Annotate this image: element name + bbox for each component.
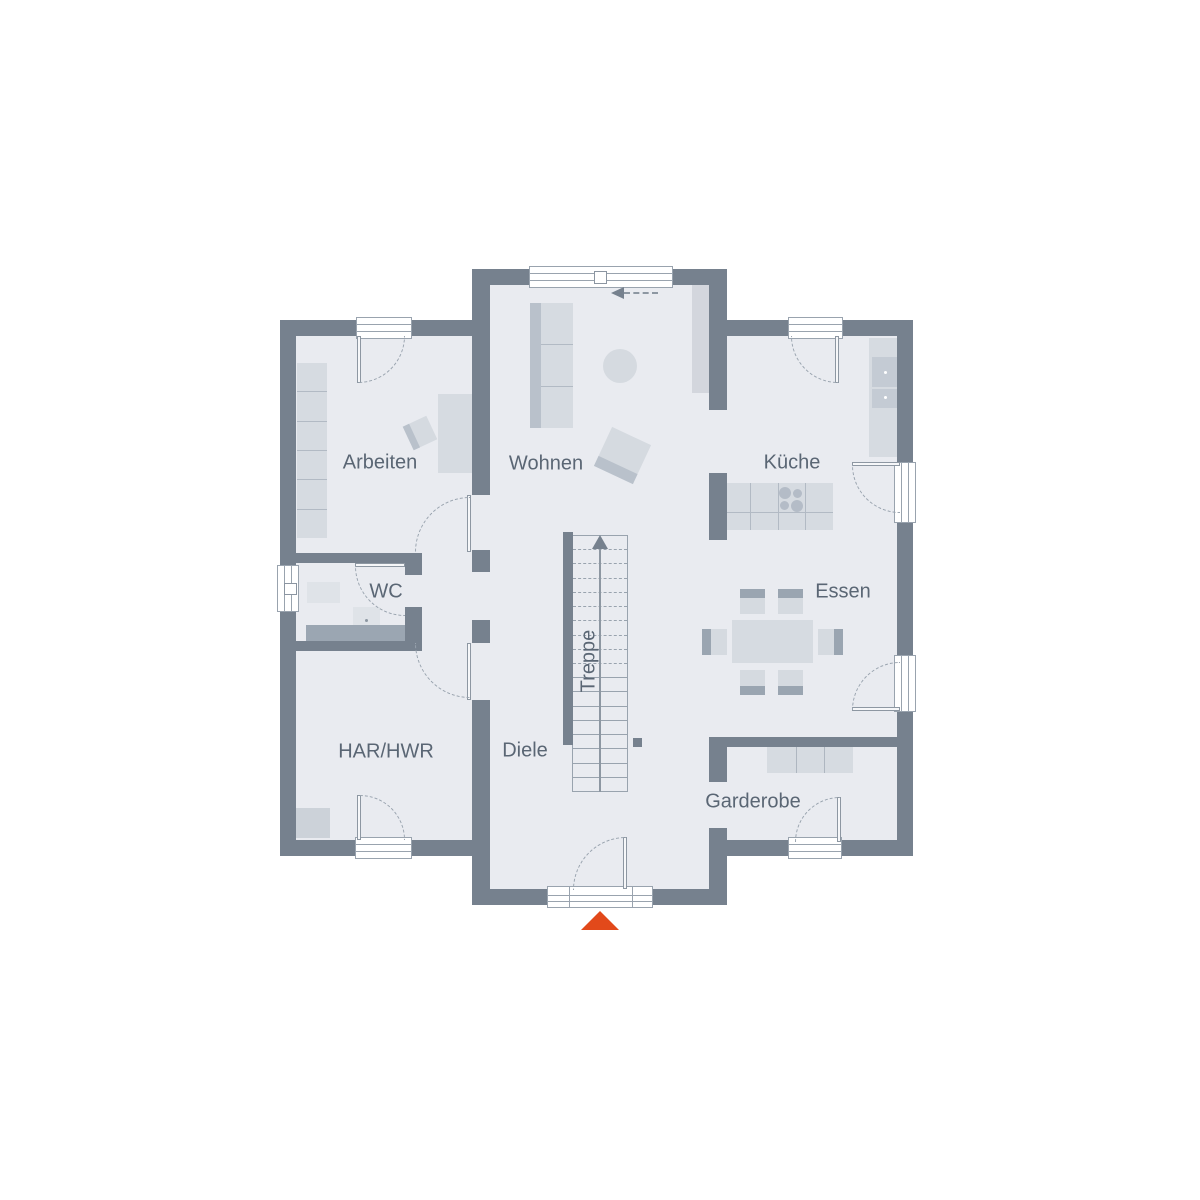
- wall-segment: [405, 553, 422, 575]
- entrance-marker-icon: [581, 911, 619, 930]
- room-label-essen: Essen: [815, 581, 871, 604]
- dining-chair: [778, 589, 803, 614]
- wall-segment: [653, 889, 727, 905]
- washbasin: [307, 582, 340, 603]
- room-label-garderobe: Garderobe: [705, 791, 801, 814]
- wall-segment: [472, 889, 547, 905]
- room-label-wc: WC: [369, 581, 402, 604]
- wall-segment: [412, 840, 472, 856]
- wall-segment: [727, 320, 788, 336]
- wall-segment: [472, 269, 490, 495]
- wall-segment: [709, 473, 727, 540]
- counter-line: [750, 483, 751, 530]
- toilet-flush: [365, 619, 368, 622]
- room-label-kueche: Küche: [764, 452, 821, 475]
- window-handle-symbol: [594, 271, 607, 284]
- desk: [438, 394, 474, 473]
- wall-segment: [897, 712, 913, 856]
- wc-ledge: [306, 625, 405, 641]
- cooktop-burner: [780, 501, 789, 510]
- sofa-backrest: [530, 303, 541, 428]
- wall-segment: [296, 641, 422, 651]
- counter-line: [805, 483, 806, 530]
- cooktop-burner: [793, 489, 802, 498]
- column-post: [633, 738, 642, 747]
- room-label-treppe: Treppe: [578, 630, 601, 693]
- wardrobe-bench: [767, 746, 853, 773]
- wall-segment: [280, 840, 355, 856]
- dining-chair: [778, 670, 803, 695]
- room-label-wohnen: Wohnen: [509, 453, 583, 476]
- media-wall: [692, 285, 709, 393]
- shelf-unit: [297, 363, 327, 538]
- coffee-table: [603, 349, 637, 383]
- direction-arrow-icon: [611, 287, 624, 299]
- window-handle-symbol: [284, 583, 297, 595]
- wall-segment: [709, 269, 727, 410]
- cooktop-burner: [779, 487, 791, 499]
- wall-segment: [296, 553, 422, 563]
- sofa: [541, 303, 573, 428]
- utility-box: [295, 808, 330, 838]
- wall-segment: [842, 840, 913, 856]
- cooktop-burner: [791, 500, 803, 512]
- floor-plan: Arbeiten Wohnen Küche WC Essen HAR/HWR D…: [0, 0, 1200, 1200]
- microwave-knob: [884, 396, 887, 399]
- stair-wall: [563, 532, 573, 745]
- toilet: [353, 607, 380, 626]
- wall-segment: [472, 620, 490, 643]
- dining-table: [732, 620, 813, 663]
- dining-chair: [702, 629, 727, 655]
- oven-knob: [884, 371, 887, 374]
- wall-segment: [709, 737, 900, 747]
- bench-line: [796, 746, 797, 773]
- room-label-diele: Diele: [502, 740, 548, 763]
- dining-chair: [740, 589, 765, 614]
- direction-dashed-line: [624, 292, 658, 294]
- wall-segment: [897, 523, 913, 655]
- wall-segment: [472, 700, 490, 905]
- dining-chair: [818, 629, 843, 655]
- counter-line: [727, 512, 833, 513]
- stair-up-arrow-icon: [592, 535, 608, 549]
- room-label-arbeiten: Arbeiten: [343, 452, 418, 475]
- dining-chair: [740, 670, 765, 695]
- bench-line: [824, 746, 825, 773]
- room-label-har-hwr: HAR/HWR: [338, 741, 434, 764]
- wall-segment: [727, 840, 788, 856]
- wall-segment: [472, 550, 490, 572]
- wall-segment: [897, 320, 913, 462]
- side-door-har: [355, 837, 412, 859]
